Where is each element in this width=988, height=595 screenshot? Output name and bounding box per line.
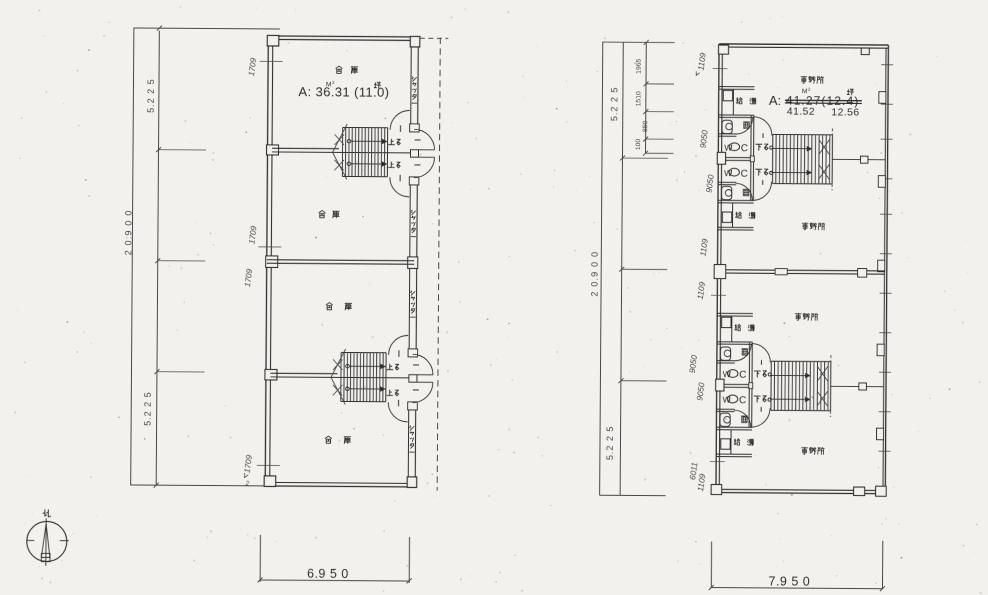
svg-text:1965: 1965 xyxy=(636,59,643,74)
svg-text:6.9 5 0: 6.9 5 0 xyxy=(307,567,349,581)
svg-text:5.2 2 5: 5.2 2 5 xyxy=(605,426,615,461)
svg-text:A: 36.31 (11.0): A: 36.31 (11.0) xyxy=(298,84,389,100)
svg-text:5.2 2 5: 5.2 2 5 xyxy=(143,391,153,426)
svg-text:M: M xyxy=(802,88,807,95)
svg-text:C: C xyxy=(739,370,746,381)
svg-text:12.56: 12.56 xyxy=(831,106,859,118)
svg-text:7.9 5 0: 7.9 5 0 xyxy=(768,574,810,588)
svg-text:2 0.9 0 0: 2 0.9 0 0 xyxy=(123,209,133,255)
svg-text:C: C xyxy=(741,169,748,180)
svg-text:5.2 2 5: 5.2 2 5 xyxy=(146,78,156,113)
svg-text:A:: A: xyxy=(769,93,781,108)
svg-text:C: C xyxy=(739,395,746,406)
svg-text:1510: 1510 xyxy=(635,91,642,106)
svg-text:41.52: 41.52 xyxy=(787,106,815,118)
svg-text:5.2 2 5: 5.2 2 5 xyxy=(609,87,619,122)
svg-text:850: 850 xyxy=(642,120,649,132)
svg-text:2 0.9 0 0: 2 0.9 0 0 xyxy=(590,251,600,297)
svg-text:100: 100 xyxy=(635,139,642,151)
svg-text:C: C xyxy=(741,143,748,154)
svg-text:2: 2 xyxy=(245,481,250,487)
